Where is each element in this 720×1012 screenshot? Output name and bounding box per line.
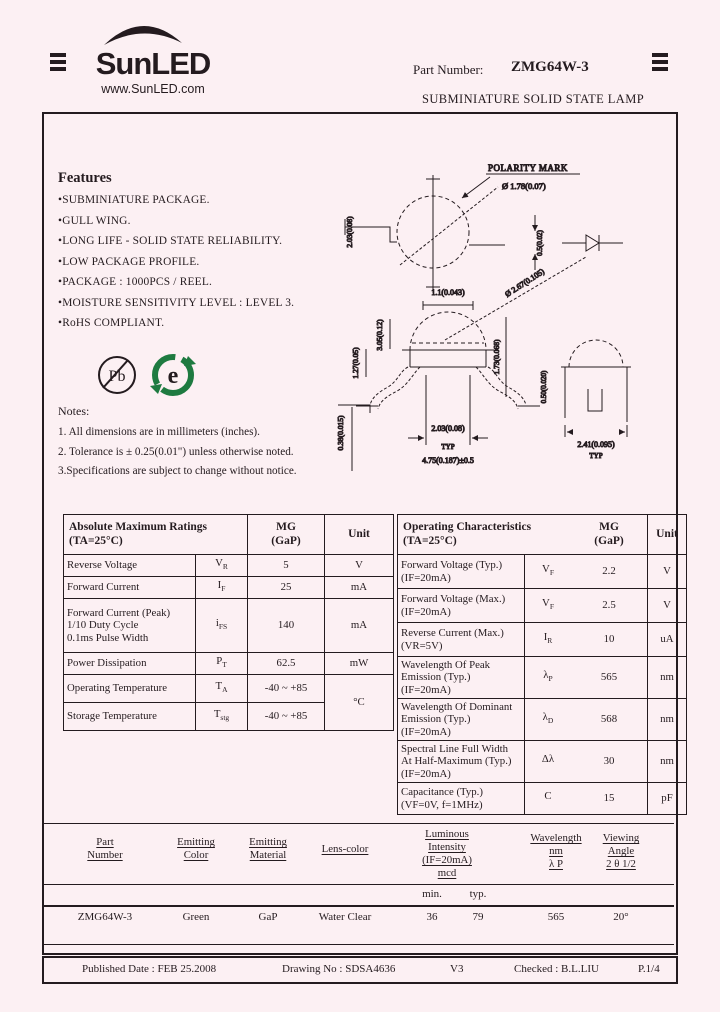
footer-page-number: P.1/4 <box>638 958 660 981</box>
column-header: MG (GaP) <box>248 515 325 555</box>
footer-bar: Published Date : FEB 25.2008 Drawing No … <box>42 956 678 984</box>
brand-site: www.SunLED.com <box>84 82 222 96</box>
feature-item: •PACKAGE : 1000PCS / REEL. <box>58 272 358 293</box>
param-cell: Wavelength Of Dominant Emission (Typ.) (… <box>398 699 525 741</box>
unit-cell: nm <box>648 699 687 741</box>
table-title: Operating Characteristics (TA=25°C) <box>398 515 572 555</box>
symbol-cell: IF <box>196 577 248 599</box>
dim-label: 1.73(0.068) <box>492 339 501 374</box>
table-title: Absolute Maximum Ratings (TA=25°C) <box>64 515 248 555</box>
value-cell: 15 <box>571 783 648 815</box>
absolute-maximum-ratings-table: Absolute Maximum Ratings (TA=25°C) MG (G… <box>63 514 394 731</box>
symbol-cell: iFS <box>196 599 248 653</box>
dim-label: TYP <box>589 452 602 460</box>
value-cell: 565 <box>571 657 648 699</box>
value-cell: 25 <box>248 577 325 599</box>
selection-header-material: Emitting Material <box>228 836 308 862</box>
unit-cell: V <box>648 589 687 623</box>
table-row: Capacitance (Typ.) (VF=0V, f=1MHz) C 15 … <box>398 783 687 815</box>
footer-published-date: Published Date : FEB 25.2008 <box>82 958 216 981</box>
feature-item: •RoHS COMPLIANT. <box>58 313 358 334</box>
table-row: Reverse Current (Max.) (VR=5V) IR 10 uA <box>398 623 687 657</box>
dim-label: 0.38(0.015) <box>336 415 345 450</box>
unit-cell: mA <box>325 599 394 653</box>
symbol-cell: VF <box>525 555 572 589</box>
value-cell: 568 <box>571 699 648 741</box>
column-header: Unit <box>648 515 687 555</box>
dim-label: 3.05(0.12) <box>375 319 384 351</box>
cell-viewing-angle: 20° <box>581 911 661 923</box>
dim-label: 1.1(0.043) <box>431 288 465 297</box>
param-cell: Forward Current <box>64 577 196 599</box>
sunled-swoosh-icon <box>98 14 188 48</box>
unit-cell: uA <box>648 623 687 657</box>
symbol-cell: TA <box>196 675 248 703</box>
symbol-cell: Tstg <box>196 703 248 731</box>
package-drawing: 2.03(0.08) POLARITY MARK Ø 1.78(0.07) 0.… <box>330 135 675 505</box>
cell-emitting-color: Green <box>156 911 236 923</box>
page-subtitle: SUBMINIATURE SOLID STATE LAMP <box>422 92 644 107</box>
param-cell: Capacitance (Typ.) (VF=0V, f=1MHz) <box>398 783 525 815</box>
brand-logo: SunLED <box>84 46 222 82</box>
table-row: Wavelength Of Peak Emission (Typ.) (IF=2… <box>398 657 687 699</box>
symbol-cell: PT <box>196 653 248 675</box>
value-cell: 2.2 <box>571 555 648 589</box>
symbol-cell: VR <box>196 555 248 577</box>
table-row: Forward Current (Peak) 1/10 Duty Cycle 0… <box>64 599 394 653</box>
selection-header-angle: Viewing Angle 2 θ 1/2 <box>581 832 661 871</box>
symbol-cell: λP <box>525 657 572 699</box>
param-cell: Wavelength Of Peak Emission (Typ.) (IF=2… <box>398 657 525 699</box>
notes-list: 1. All dimensions are in millimeters (in… <box>58 423 297 482</box>
dim-label: 2.41(0.095) <box>577 440 615 449</box>
cell-part-number: ZMG64W-3 <box>60 911 150 923</box>
footer-version: V3 <box>450 958 463 981</box>
symbol-cell: C <box>525 783 572 815</box>
subheader-min: min. <box>407 888 457 900</box>
value-cell: 30 <box>571 741 648 783</box>
table-row: Forward Current IF 25 mA <box>64 577 394 599</box>
symbol-cell: λD <box>525 699 572 741</box>
param-cell: Operating Temperature <box>64 675 196 703</box>
unit-cell: mW <box>325 653 394 675</box>
table-row: Reverse Voltage VR 5 V <box>64 555 394 577</box>
cell-emitting-material: GaP <box>228 911 308 923</box>
table-row: Power Dissipation PT 62.5 mW <box>64 653 394 675</box>
feature-item: •LONG LIFE - SOLID STATE RELIABILITY. <box>58 231 358 252</box>
divider <box>44 823 674 824</box>
dim-label: 0.50(0.020) <box>540 370 548 403</box>
value-cell: 5 <box>248 555 325 577</box>
symbol-cell: VF <box>525 589 572 623</box>
diode-symbol <box>562 235 623 251</box>
table-row: Spectral Line Full Width At Half-Maximum… <box>398 741 687 783</box>
footer-drawing-no: Drawing No : SDSA4636 <box>282 958 395 981</box>
unit-cell: mA <box>325 577 394 599</box>
corner-bars-left-icon <box>50 53 66 74</box>
selection-header-intensity: Luminous Intensity (IF=20mA) mcd <box>392 828 502 880</box>
cell-intensity-min: 36 <box>407 911 457 923</box>
dim-label: 1.27(0.05) <box>351 347 360 379</box>
param-cell: Reverse Current (Max.) (VR=5V) <box>398 623 525 657</box>
param-cell: Forward Voltage (Max.) (IF=20mA) <box>398 589 525 623</box>
param-cell: Spectral Line Full Width At Half-Maximum… <box>398 741 525 783</box>
value-cell: 2.5 <box>571 589 648 623</box>
features-list: •SUBMINIATURE PACKAGE. •GULL WING. •LONG… <box>58 190 358 334</box>
unit-cell: nm <box>648 657 687 699</box>
column-header: Unit <box>325 515 394 555</box>
param-cell: Reverse Voltage <box>64 555 196 577</box>
unit-cell: °C <box>325 675 394 731</box>
value-cell: 10 <box>571 623 648 657</box>
dim-label: 0.5(0.02) <box>536 230 544 256</box>
features-title: Features <box>58 170 112 187</box>
unit-cell: pF <box>648 783 687 815</box>
symbol-cell: IR <box>525 623 572 657</box>
dim-label: TYP <box>441 443 454 451</box>
divider <box>44 905 674 907</box>
value-cell: -40 ~ +85 <box>248 703 325 731</box>
feature-item: •SUBMINIATURE PACKAGE. <box>58 190 358 211</box>
cell-lens-color: Water Clear <box>300 911 390 923</box>
operating-characteristics-table: Operating Characteristics (TA=25°C) MG (… <box>397 514 687 815</box>
symbol-cell: Δλ <box>525 741 572 783</box>
datasheet-page: SunLED www.SunLED.com Part Number: ZMG64… <box>0 0 720 1012</box>
footer-checked-by: Checked : B.L.LIU <box>514 958 599 981</box>
divider <box>44 884 674 885</box>
unit-cell: V <box>325 555 394 577</box>
note-line: 3.Specifications are subject to change w… <box>58 462 297 482</box>
dim-label: 2.03(0.08) <box>345 216 354 248</box>
dim-label: 4.75(0.187)±0.5 <box>422 456 474 465</box>
feature-item: •LOW PACKAGE PROFILE. <box>58 252 358 273</box>
feature-item: •GULL WING. <box>58 211 358 232</box>
table-row: Wavelength Of Dominant Emission (Typ.) (… <box>398 699 687 741</box>
note-line: 2. Tolerance is ± 0.25(0.01") unless oth… <box>58 443 297 463</box>
unit-cell: nm <box>648 741 687 783</box>
value-cell: 140 <box>248 599 325 653</box>
cell-intensity-typ: 79 <box>453 911 503 923</box>
part-number-label: Part Number: <box>413 62 483 78</box>
note-line: 1. All dimensions are in millimeters (in… <box>58 423 297 443</box>
feature-item: •MOISTURE SENSITIVITY LEVEL : LEVEL 3. <box>58 293 358 314</box>
param-cell: Storage Temperature <box>64 703 196 731</box>
param-cell: Power Dissipation <box>64 653 196 675</box>
param-cell: Forward Current (Peak) 1/10 Duty Cycle 0… <box>64 599 196 653</box>
table-row: Forward Voltage (Typ.) (IF=20mA) VF 2.2 … <box>398 555 687 589</box>
selection-header-color: Emitting Color <box>156 836 236 862</box>
subheader-typ: typ. <box>453 888 503 900</box>
svg-text:Pb: Pb <box>109 368 126 385</box>
notes-title: Notes: <box>58 404 89 419</box>
dim-label: Ø 2.67(0.105) <box>503 267 546 299</box>
svg-text:e: e <box>168 363 179 389</box>
dim-label: 2.03(0.08) <box>431 424 465 433</box>
unit-cell: V <box>648 555 687 589</box>
selection-header-lens: Lens-color <box>300 843 390 856</box>
selection-header-part: Part Number <box>60 836 150 862</box>
polarity-mark-label: POLARITY MARK <box>488 163 568 173</box>
corner-bars-right-icon <box>652 53 668 74</box>
rohs-e-icon: e <box>150 352 196 398</box>
divider <box>44 944 674 945</box>
table-row: Operating Temperature TA -40 ~ +85 °C <box>64 675 394 703</box>
value-cell: -40 ~ +85 <box>248 675 325 703</box>
pb-free-icon: Pb <box>96 354 138 396</box>
param-cell: Forward Voltage (Typ.) (IF=20mA) <box>398 555 525 589</box>
part-number-value: ZMG64W-3 <box>511 59 589 76</box>
column-header: MG (GaP) <box>571 515 648 555</box>
table-row: Forward Voltage (Max.) (IF=20mA) VF 2.5 … <box>398 589 687 623</box>
value-cell: 62.5 <box>248 653 325 675</box>
dim-label: Ø 1.78(0.07) <box>502 181 546 191</box>
